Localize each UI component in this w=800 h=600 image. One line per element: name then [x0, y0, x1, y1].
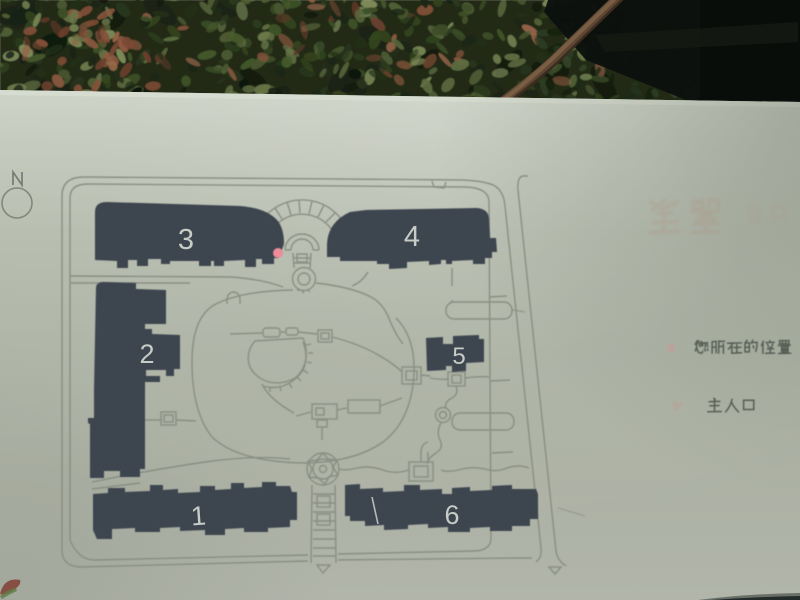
svg-text:6: 6 — [444, 500, 459, 530]
svg-text:1: 1 — [190, 501, 207, 532]
svg-text:2: 2 — [139, 339, 154, 369]
svg-text:5: 5 — [452, 343, 465, 370]
svg-text:3: 3 — [178, 224, 194, 256]
svg-text:4: 4 — [404, 221, 420, 253]
